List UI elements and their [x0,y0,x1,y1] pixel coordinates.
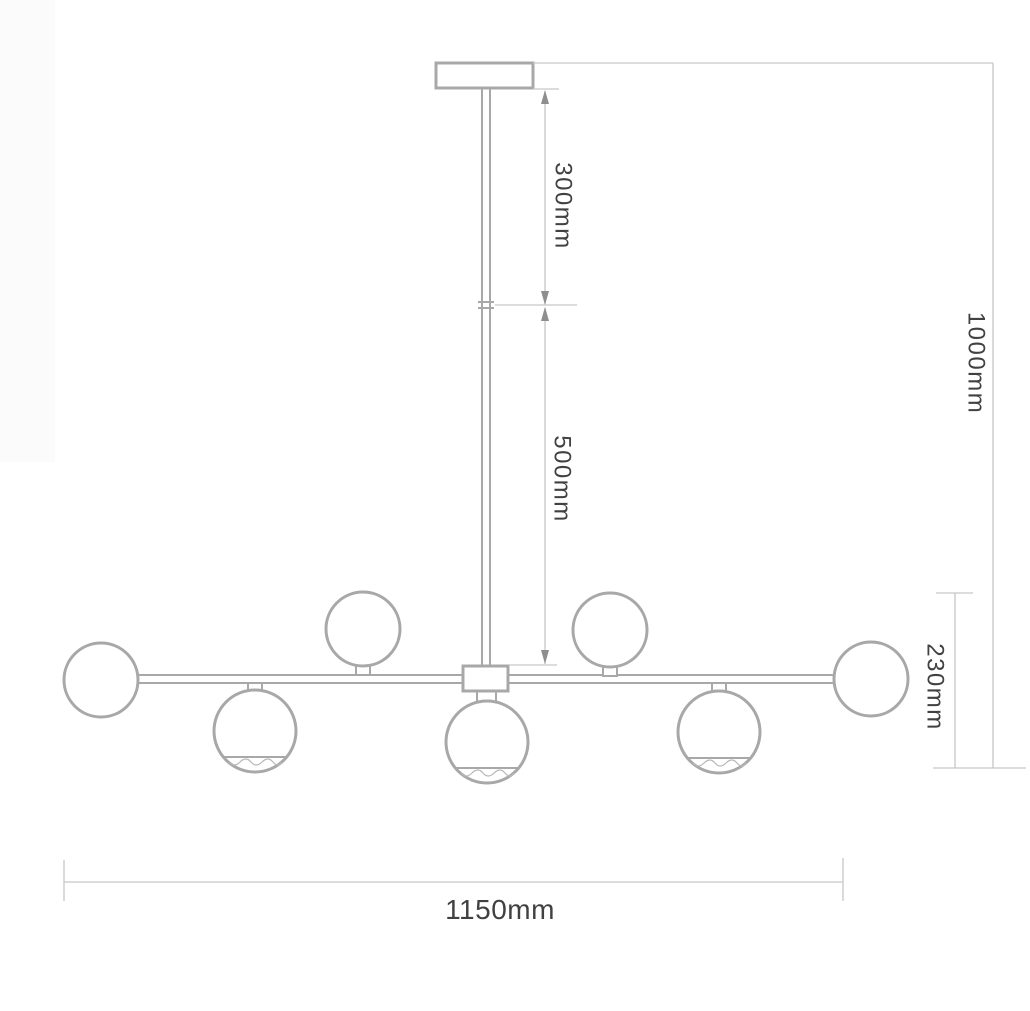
globe-above-left [326,592,400,666]
globe-right-end [834,642,908,716]
center-hub [463,666,508,691]
ceiling-canopy [436,63,533,88]
globe-left-end [64,643,138,717]
globe-center-below [446,701,528,783]
label-300mm: 300mm [550,162,577,250]
dimension-300mm: 300mm [541,90,577,305]
fixture [64,63,908,783]
label-1150mm: 1150mm [445,894,555,925]
globe-below-left [214,690,296,772]
chandelier-dimension-drawing: 300mm 500mm 1000mm 230mm 1150mm [0,0,1030,1011]
arrow-down-300 [541,291,549,305]
globe-above-right [573,593,647,667]
dimension-annotations: 300mm 500mm 1000mm 230mm 1150mm [64,63,1026,925]
suspension-rod [478,88,494,666]
label-1000mm: 1000mm [963,312,990,414]
arrow-up-500 [541,307,549,321]
arrow-up-300 [541,90,549,104]
label-230mm: 230mm [922,643,949,731]
dimension-500mm: 500mm [541,307,576,664]
dimension-230mm: 230mm [922,593,1027,768]
diagram-canvas: 300mm 500mm 1000mm 230mm 1150mm [0,0,1030,1011]
globe-below-right [678,691,760,773]
dimension-1150mm: 1150mm [64,858,843,925]
label-500mm: 500mm [549,435,576,523]
dimension-1000mm: 1000mm [963,63,994,768]
arrow-down-500 [541,650,549,664]
page-margin-shade [0,0,55,462]
